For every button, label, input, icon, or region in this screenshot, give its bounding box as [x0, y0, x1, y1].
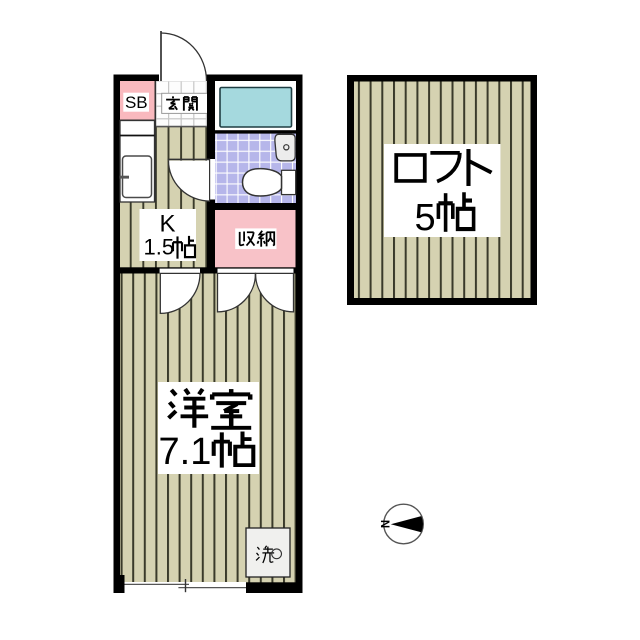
svg-text:5: 5	[415, 197, 436, 239]
svg-text:1.5: 1.5	[144, 235, 175, 260]
svg-text:K: K	[159, 211, 175, 238]
svg-text:N: N	[381, 520, 393, 528]
svg-text:7.1: 7.1	[159, 431, 212, 473]
svg-text:SB: SB	[125, 93, 148, 112]
